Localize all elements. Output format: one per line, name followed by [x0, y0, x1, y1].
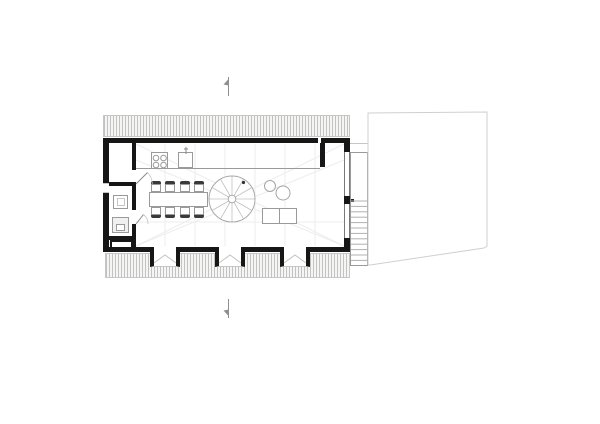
spiral-staircase	[209, 176, 255, 222]
detail-overlay	[0, 0, 600, 424]
section-arrow-icon	[224, 310, 229, 317]
spiral-stair-entry-dot	[242, 181, 245, 184]
door-arc-bath	[144, 215, 149, 225]
spiral-stair-column	[228, 195, 236, 203]
sink-faucet-icon	[184, 147, 188, 154]
section-arrow-icon	[224, 79, 229, 86]
window-swing-marks	[154, 255, 306, 263]
section-marker-top	[224, 77, 229, 96]
door-arc-living	[148, 173, 153, 185]
hob-burners	[153, 155, 166, 168]
window-swing-mark	[154, 255, 176, 263]
hob-burner	[153, 155, 159, 161]
exterior-stair-treads	[351, 201, 367, 260]
lounge-stools	[265, 181, 291, 201]
window-swing-mark	[284, 255, 306, 263]
hob-burner	[161, 162, 167, 168]
hob-burner	[153, 162, 159, 168]
floor-plan-canvas	[0, 0, 600, 424]
stool-large	[276, 186, 290, 200]
hob-burner	[161, 155, 167, 161]
section-marker-bottom	[224, 299, 229, 318]
adjacent-building-outline	[368, 112, 487, 265]
stool-small	[265, 181, 276, 192]
door-leaf-living	[136, 173, 148, 185]
window-swing-mark	[219, 255, 241, 263]
door-swings	[136, 173, 152, 225]
door-leaf-bath	[136, 215, 144, 225]
